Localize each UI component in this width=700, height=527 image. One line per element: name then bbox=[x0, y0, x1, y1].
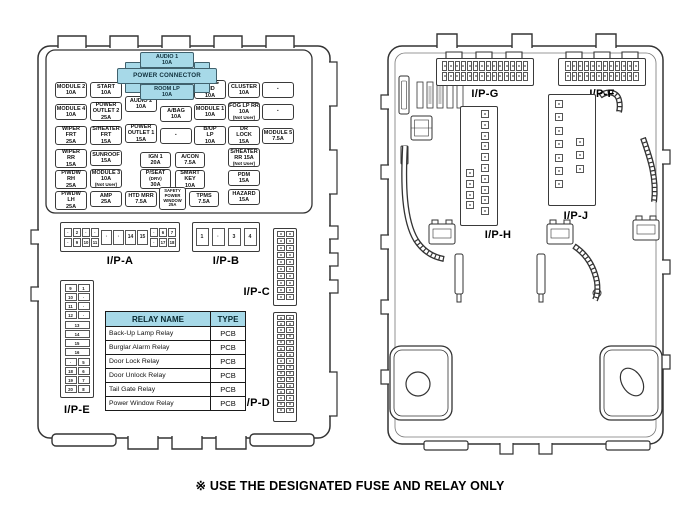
pin-cell bbox=[576, 165, 584, 173]
relay-table: RELAY NAME TYPE Back-Up Lamp RelayPCBBur… bbox=[105, 311, 246, 411]
pin-cell: 15 bbox=[65, 339, 90, 347]
pin-cell bbox=[615, 61, 620, 71]
pin-cell bbox=[609, 72, 614, 82]
pin-cell: 19 bbox=[65, 376, 77, 384]
pin-cell: 4 bbox=[244, 228, 257, 246]
pin-cell bbox=[555, 154, 563, 162]
pin-cell bbox=[286, 266, 294, 272]
pin-cell: · bbox=[91, 228, 99, 237]
pin-cell bbox=[277, 383, 285, 388]
pin-cell: · bbox=[64, 238, 72, 247]
pin-cell bbox=[590, 72, 595, 82]
pin-cell bbox=[555, 167, 563, 175]
relay-type-cell: PCB bbox=[211, 383, 246, 397]
pin-cell: 9 bbox=[73, 238, 81, 247]
fuse-text-line: 10A bbox=[205, 139, 215, 145]
pin-cell bbox=[277, 238, 285, 244]
power-connector-bar: POWER CONNECTOR bbox=[117, 68, 217, 84]
pin-cell bbox=[481, 164, 489, 172]
pin-cell bbox=[603, 72, 608, 82]
pin-cell bbox=[286, 371, 294, 376]
fuse-text-line: 15A bbox=[239, 197, 249, 203]
pin-cell bbox=[286, 245, 294, 251]
pin-cell bbox=[466, 201, 474, 209]
pin-cell bbox=[277, 346, 285, 351]
pin-cell: 11 bbox=[65, 302, 77, 310]
fuse-pdm-15a: PDM15A bbox=[228, 170, 260, 186]
pin-cell bbox=[277, 259, 285, 265]
pin-cell bbox=[277, 352, 285, 357]
power-connector-label: POWER CONNECTOR bbox=[133, 72, 201, 79]
fuse-module-3-10a-not-user: MODULE 310A(Not User) bbox=[90, 169, 122, 188]
pin-cell bbox=[479, 61, 484, 71]
pin-cell bbox=[442, 72, 447, 82]
pin-cell: 17 bbox=[159, 238, 167, 247]
pin-cell: 10 bbox=[65, 293, 77, 301]
relay-row: Tail Gate RelayPCB bbox=[106, 383, 246, 397]
fuse-text-line: 25A bbox=[66, 139, 76, 145]
fuse-text-line: 7.5A bbox=[184, 160, 196, 166]
pin-cell bbox=[277, 280, 285, 286]
pin-cell bbox=[516, 72, 521, 82]
pin-cell bbox=[481, 121, 489, 129]
relay-row: Door Unlock RelayPCB bbox=[106, 369, 246, 383]
pin-cell bbox=[286, 315, 294, 320]
pin-cell bbox=[615, 72, 620, 82]
pin-cell bbox=[277, 377, 285, 382]
pin-cell bbox=[448, 72, 453, 82]
fuse-module-2-10a: MODULE 210A bbox=[55, 82, 87, 98]
pin-cell bbox=[523, 61, 528, 71]
pin-cell bbox=[277, 340, 285, 345]
empty-fuse-slot: · bbox=[262, 104, 294, 120]
label-iph: I/P-H bbox=[466, 229, 530, 241]
pin-cell bbox=[596, 72, 601, 82]
pin-cell bbox=[286, 280, 294, 286]
pin-cell bbox=[481, 175, 489, 183]
pin-cell bbox=[277, 252, 285, 258]
connector-ipf bbox=[558, 58, 646, 86]
ipa-left-cells: ·2···91011 bbox=[64, 228, 99, 247]
pin-cell bbox=[555, 127, 563, 135]
pin-cell: · bbox=[101, 230, 112, 245]
relay-type-cell: PCB bbox=[211, 327, 246, 341]
pin-cell bbox=[578, 61, 583, 71]
power-connector-ear bbox=[125, 83, 141, 93]
pin-cell bbox=[467, 72, 472, 82]
fuse-text-line: (Not User) bbox=[95, 182, 117, 187]
pin-cell: · bbox=[78, 311, 90, 319]
pin-cell: 16 bbox=[65, 348, 90, 356]
fuse-a-con-7-5a: A/CON7.5A bbox=[175, 152, 205, 168]
pin-cell bbox=[286, 365, 294, 370]
fuse-b-up-lp-10a: B/UPLP10A bbox=[194, 126, 226, 145]
fuse-s-heater-frt-15a: S/HEATERFRT15A bbox=[90, 126, 122, 145]
fuse-room-lp: ROOM LP 10A bbox=[140, 84, 194, 100]
relay-name-cell: Back-Up Lamp Relay bbox=[106, 327, 211, 341]
pin-cell bbox=[277, 327, 285, 332]
pin-cell bbox=[633, 61, 638, 71]
fuse-p-seat-drv-30a: P/SEAT(DRV)30A bbox=[140, 169, 171, 189]
pin-cell bbox=[277, 273, 285, 279]
pin-cell bbox=[603, 61, 608, 71]
pin-cell: 15 bbox=[137, 230, 148, 245]
pin-cell bbox=[481, 186, 489, 194]
pin-cell: · bbox=[78, 302, 90, 310]
pin-cell bbox=[461, 72, 466, 82]
pin-cell: · bbox=[113, 230, 124, 245]
pin-cell bbox=[466, 180, 474, 188]
pin-cell bbox=[286, 294, 294, 300]
pin-cell bbox=[277, 266, 285, 272]
pin-cell bbox=[621, 61, 626, 71]
fuse-text-line: 7.5A bbox=[135, 199, 147, 205]
fusebox-diagram: MODULE 210ASTART10AA/BAGIND10ACLUSTER10A… bbox=[0, 0, 700, 527]
pin-cell bbox=[286, 358, 294, 363]
fuse-text-line: 10A bbox=[66, 112, 76, 118]
caption-text: ※ USE THE DESIGNATED FUSE AND RELAY ONLY bbox=[0, 478, 700, 493]
fuse-sunroof-15a: SUNROOF15A bbox=[90, 150, 122, 166]
pin-cell bbox=[277, 321, 285, 326]
pin-cell bbox=[286, 340, 294, 345]
pin-cell bbox=[584, 61, 589, 71]
fuse-text-line: 25A bbox=[169, 203, 177, 208]
relay-name-cell: Tail Gate Relay bbox=[106, 383, 211, 397]
pin-cell bbox=[286, 238, 294, 244]
ipe-bottom-cells: ·5186197208 bbox=[65, 358, 90, 393]
pin-cell bbox=[633, 72, 638, 82]
connector-ipd bbox=[273, 312, 297, 422]
pin-cell: 3 bbox=[228, 228, 241, 246]
pin-cell: 14 bbox=[65, 330, 90, 338]
fuse-p-wdw-lh-25a: P/WDWLH25A bbox=[55, 191, 87, 210]
relay-name-cell: Door Lock Relay bbox=[106, 355, 211, 369]
pin-cell: · bbox=[150, 228, 158, 237]
pin-cell bbox=[455, 61, 460, 71]
fuse-safety-power-window-25a: SAFETYPOWERWINDOW25A bbox=[159, 187, 186, 210]
relay-name-header: RELAY NAME bbox=[106, 312, 211, 327]
fuse-amp: 10A bbox=[162, 60, 172, 66]
pin-cell: 6 bbox=[159, 228, 167, 237]
connector-ipc bbox=[273, 228, 297, 306]
pin-cell bbox=[286, 408, 294, 413]
relay-row: Door Lock RelayPCB bbox=[106, 355, 246, 369]
pin-cell bbox=[466, 169, 474, 177]
left-panel-bottom-tabs bbox=[52, 434, 314, 449]
pin-cell bbox=[590, 61, 595, 71]
fuse-text-line: 15A bbox=[101, 139, 111, 145]
pin-cell bbox=[481, 207, 489, 215]
pin-cell: 7 bbox=[78, 376, 90, 384]
fuse-text-line: 10A bbox=[185, 183, 195, 189]
pin-cell bbox=[584, 72, 589, 82]
label-ipb: I/P-B bbox=[192, 255, 260, 267]
fuse-text-line: 10A bbox=[205, 112, 215, 118]
ipe-top-cells: 9110·11·12· bbox=[65, 284, 90, 319]
label-ipc: I/P-C bbox=[236, 286, 270, 298]
pin-cell: 12 bbox=[65, 311, 77, 319]
pin-cell bbox=[277, 408, 285, 413]
relay-type-cell: PCB bbox=[211, 369, 246, 383]
pin-cell bbox=[492, 72, 497, 82]
power-connector: AUDIO 1 10A POWER CONNECTOR ROOM LP 10A bbox=[117, 52, 217, 101]
pin-cell bbox=[576, 151, 584, 159]
fuse-text-line: 10A bbox=[101, 90, 111, 96]
pin-cell bbox=[492, 61, 497, 71]
pin-cell: 6 bbox=[78, 367, 90, 375]
pin-cell: 18 bbox=[65, 367, 77, 375]
pin-cell bbox=[486, 61, 491, 71]
fuse-amp: 10A bbox=[162, 92, 172, 98]
fuse-power-outlet-1-15a: POWEROUTLET 115A bbox=[125, 124, 157, 143]
fuse-module-1-10a: MODULE 110A bbox=[194, 104, 226, 120]
fuse-text-line: 10A bbox=[239, 90, 249, 96]
pin-cell bbox=[523, 72, 528, 82]
fuse-htd-mrr-7-5a: HTD MRR7.5A bbox=[125, 191, 157, 207]
connector-ipe: 9110·11·12· 13141516 ·5186197208 bbox=[60, 280, 94, 398]
pin-cell bbox=[627, 72, 632, 82]
power-connector-ear bbox=[194, 83, 210, 93]
pin-cell bbox=[277, 389, 285, 394]
label-ipg: I/P-G bbox=[436, 88, 534, 100]
pin-cell: 8 bbox=[78, 385, 90, 393]
pin-cell bbox=[572, 61, 577, 71]
relay-name-cell: Power Window Relay bbox=[106, 397, 211, 411]
fuse-cluster-10a: CLUSTER10A bbox=[228, 82, 260, 98]
pin-cell: 9 bbox=[65, 284, 77, 292]
pin-cell bbox=[455, 72, 460, 82]
pin-cell bbox=[277, 245, 285, 251]
pin-cell bbox=[555, 100, 563, 108]
fuse-text-line: 25A bbox=[101, 115, 111, 121]
pin-cell: · bbox=[65, 358, 77, 366]
fuse-text-line: 20A bbox=[150, 160, 160, 166]
relay-table-head: RELAY NAME TYPE bbox=[106, 312, 246, 327]
iph-left-pins bbox=[466, 169, 474, 209]
pin-cell bbox=[286, 334, 294, 339]
pin-cell bbox=[286, 259, 294, 265]
pin-cell bbox=[596, 61, 601, 71]
pin-cell bbox=[286, 346, 294, 351]
pin-cell bbox=[516, 61, 521, 71]
fuse-text-line: 10A bbox=[66, 90, 76, 96]
fuse-amp-25a: AMP25A bbox=[90, 191, 122, 207]
fuse-p-wdw-rh-25a: P/WDWRH25A bbox=[55, 170, 87, 189]
relay-type-cell: PCB bbox=[211, 341, 246, 355]
relay-table-header-row: RELAY NAME TYPE bbox=[106, 312, 246, 327]
relay-name-cell: Burglar Alarm Relay bbox=[106, 341, 211, 355]
pin-cell bbox=[621, 72, 626, 82]
pin-cell bbox=[565, 61, 570, 71]
pin-cell bbox=[277, 334, 285, 339]
fuse-text-line: 7.5A bbox=[198, 199, 210, 205]
pin-cell: 5 bbox=[78, 358, 90, 366]
pin-cell bbox=[277, 402, 285, 407]
fuse-text-line: 15A bbox=[136, 137, 146, 143]
pin-cell bbox=[481, 196, 489, 204]
pin-cell: 2 bbox=[73, 228, 81, 237]
pin-cell bbox=[565, 72, 570, 82]
pin-cell bbox=[286, 402, 294, 407]
connector-ipb: 1·34 bbox=[192, 222, 260, 252]
pin-cell bbox=[555, 180, 563, 188]
pin-cell bbox=[277, 315, 285, 320]
pin-cell bbox=[277, 231, 285, 237]
pin-cell bbox=[473, 72, 478, 82]
fuse-text-line: 15A bbox=[239, 139, 249, 145]
fuse-module-4-10a: MODULE 410A bbox=[55, 104, 87, 120]
label-ipj: I/P-J bbox=[548, 210, 604, 222]
fuse-power-outlet-2-25a: POWEROUTLET 225A bbox=[90, 102, 122, 121]
pin-cell bbox=[448, 61, 453, 71]
pin-cell bbox=[486, 72, 491, 82]
pin-cell bbox=[481, 142, 489, 150]
pin-cell: 20 bbox=[65, 385, 77, 393]
pin-cell bbox=[286, 352, 294, 357]
fuse-text-line: 10A bbox=[136, 104, 146, 110]
pin-cell bbox=[481, 153, 489, 161]
pin-cell: 1 bbox=[196, 228, 209, 246]
pin-cell bbox=[555, 113, 563, 121]
pin-cell bbox=[555, 140, 563, 148]
pin-cell bbox=[473, 61, 478, 71]
pin-cell: 10 bbox=[82, 238, 90, 247]
fuse-wiper-frt-25a: WIPERFRT25A bbox=[55, 126, 87, 145]
pin-cell: 11 bbox=[91, 238, 99, 247]
fuse-text-line: (Not User) bbox=[233, 115, 255, 120]
pin-cell bbox=[286, 377, 294, 382]
fuse-text-line: 25A bbox=[101, 199, 111, 205]
fuse-text-line: 25A bbox=[66, 204, 76, 210]
label-ipe: I/P-E bbox=[52, 404, 102, 416]
pin-cell bbox=[286, 383, 294, 388]
pin-cell bbox=[286, 231, 294, 237]
pin-cell bbox=[286, 252, 294, 258]
connector-ipg bbox=[436, 58, 534, 86]
pin-cell: 14 bbox=[125, 230, 136, 245]
connector-iph bbox=[460, 106, 498, 226]
fuse-text-line: 10A bbox=[171, 114, 181, 120]
pin-cell bbox=[466, 191, 474, 199]
ipa-right-cells: ·67·1718 bbox=[150, 228, 176, 247]
relay-row: Burglar Alarm RelayPCB bbox=[106, 341, 246, 355]
pin-cell bbox=[498, 61, 503, 71]
pin-cell bbox=[277, 395, 285, 400]
relay-table-body: Back-Up Lamp RelayPCBBurglar Alarm Relay… bbox=[106, 327, 246, 411]
fuse-fog-lp-rr-10a-not-user: FOG LP RR10A(Not User) bbox=[228, 102, 260, 121]
fuse-text-line: 15A bbox=[66, 162, 76, 168]
pin-cell bbox=[286, 273, 294, 279]
empty-fuse-slot: · bbox=[262, 82, 294, 98]
fuse-text-line: 7.5A bbox=[272, 136, 284, 142]
pin-cell bbox=[481, 132, 489, 140]
pin-cell bbox=[277, 371, 285, 376]
fuse-ign-1-20a: IGN 120A bbox=[140, 152, 171, 168]
fuse-dr-lock-15a: DRLOCK15A bbox=[228, 126, 260, 145]
pin-cell bbox=[498, 72, 503, 82]
fuse-text-line: (Not User) bbox=[233, 161, 255, 166]
fuse-hazard-15a: HAZARD15A bbox=[228, 189, 260, 205]
fuse-s-heater-rr-15a-not-user: S/HEATERRR 15A(Not User) bbox=[228, 148, 260, 167]
ipj-right-pins bbox=[576, 138, 584, 173]
relay-type-cell: PCB bbox=[211, 397, 246, 411]
pin-cell bbox=[461, 61, 466, 71]
pin-cell: · bbox=[212, 228, 225, 246]
pin-cell bbox=[510, 72, 515, 82]
pin-cell bbox=[277, 287, 285, 293]
relay-row: Back-Up Lamp RelayPCB bbox=[106, 327, 246, 341]
relay-type-cell: PCB bbox=[211, 355, 246, 369]
relay-name-cell: Door Unlock Relay bbox=[106, 369, 211, 383]
fuse-a-bag-10a: A/BAG10A bbox=[160, 106, 192, 122]
fuse-wiper-rr-15a: WIPERRR15A bbox=[55, 149, 87, 168]
pin-cell bbox=[277, 365, 285, 370]
pin-cell bbox=[510, 61, 515, 71]
pin-cell: · bbox=[82, 228, 90, 237]
fuse-text-line: 15A bbox=[239, 178, 249, 184]
ipj-left-pins bbox=[555, 100, 563, 188]
pin-cell bbox=[286, 395, 294, 400]
pin-cell: 7 bbox=[168, 228, 176, 237]
fuse-audio-1: AUDIO 1 10A bbox=[140, 52, 194, 68]
pin-cell bbox=[286, 389, 294, 394]
fuse-text-line: 15A bbox=[101, 158, 111, 164]
pin-cell bbox=[627, 61, 632, 71]
pin-cell: 18 bbox=[168, 238, 176, 247]
empty-fuse-slot: · bbox=[160, 128, 192, 144]
pin-cell bbox=[578, 72, 583, 82]
pin-cell bbox=[442, 61, 447, 71]
pin-cell bbox=[572, 72, 577, 82]
pin-cell bbox=[481, 110, 489, 118]
connector-ipj bbox=[548, 94, 596, 206]
pin-cell bbox=[479, 72, 484, 82]
relay-row: Power Window RelayPCB bbox=[106, 397, 246, 411]
pin-cell bbox=[504, 72, 509, 82]
pin-cell bbox=[286, 327, 294, 332]
pin-cell: · bbox=[78, 293, 90, 301]
relay-type-header: TYPE bbox=[211, 312, 246, 327]
pin-cell bbox=[467, 61, 472, 71]
pin-cell: · bbox=[150, 238, 158, 247]
connector-ipa: ·2···91011 ··1415 ·67·1718 bbox=[60, 222, 180, 252]
pin-cell bbox=[504, 61, 509, 71]
ipe-middle-cells: 13141516 bbox=[65, 321, 90, 356]
fuse-tpms-7-5a: TPMS7.5A bbox=[189, 191, 219, 207]
iph-right-pins bbox=[481, 110, 489, 215]
pin-cell: · bbox=[64, 228, 72, 237]
pin-cell bbox=[286, 321, 294, 326]
pin-cell bbox=[277, 294, 285, 300]
pin-cell bbox=[576, 138, 584, 146]
pin-cell: 1 bbox=[78, 284, 90, 292]
pin-cell bbox=[609, 61, 614, 71]
fuse-module-5-7-5a: MODULE 57.5A bbox=[262, 128, 294, 144]
pin-cell bbox=[286, 287, 294, 293]
pin-cell bbox=[277, 358, 285, 363]
fuse-text-line: 25A bbox=[66, 183, 76, 189]
ipa-middle-cells: ··1415 bbox=[101, 230, 148, 245]
label-ipa: I/P-A bbox=[60, 255, 180, 267]
pin-cell: 13 bbox=[65, 321, 90, 329]
